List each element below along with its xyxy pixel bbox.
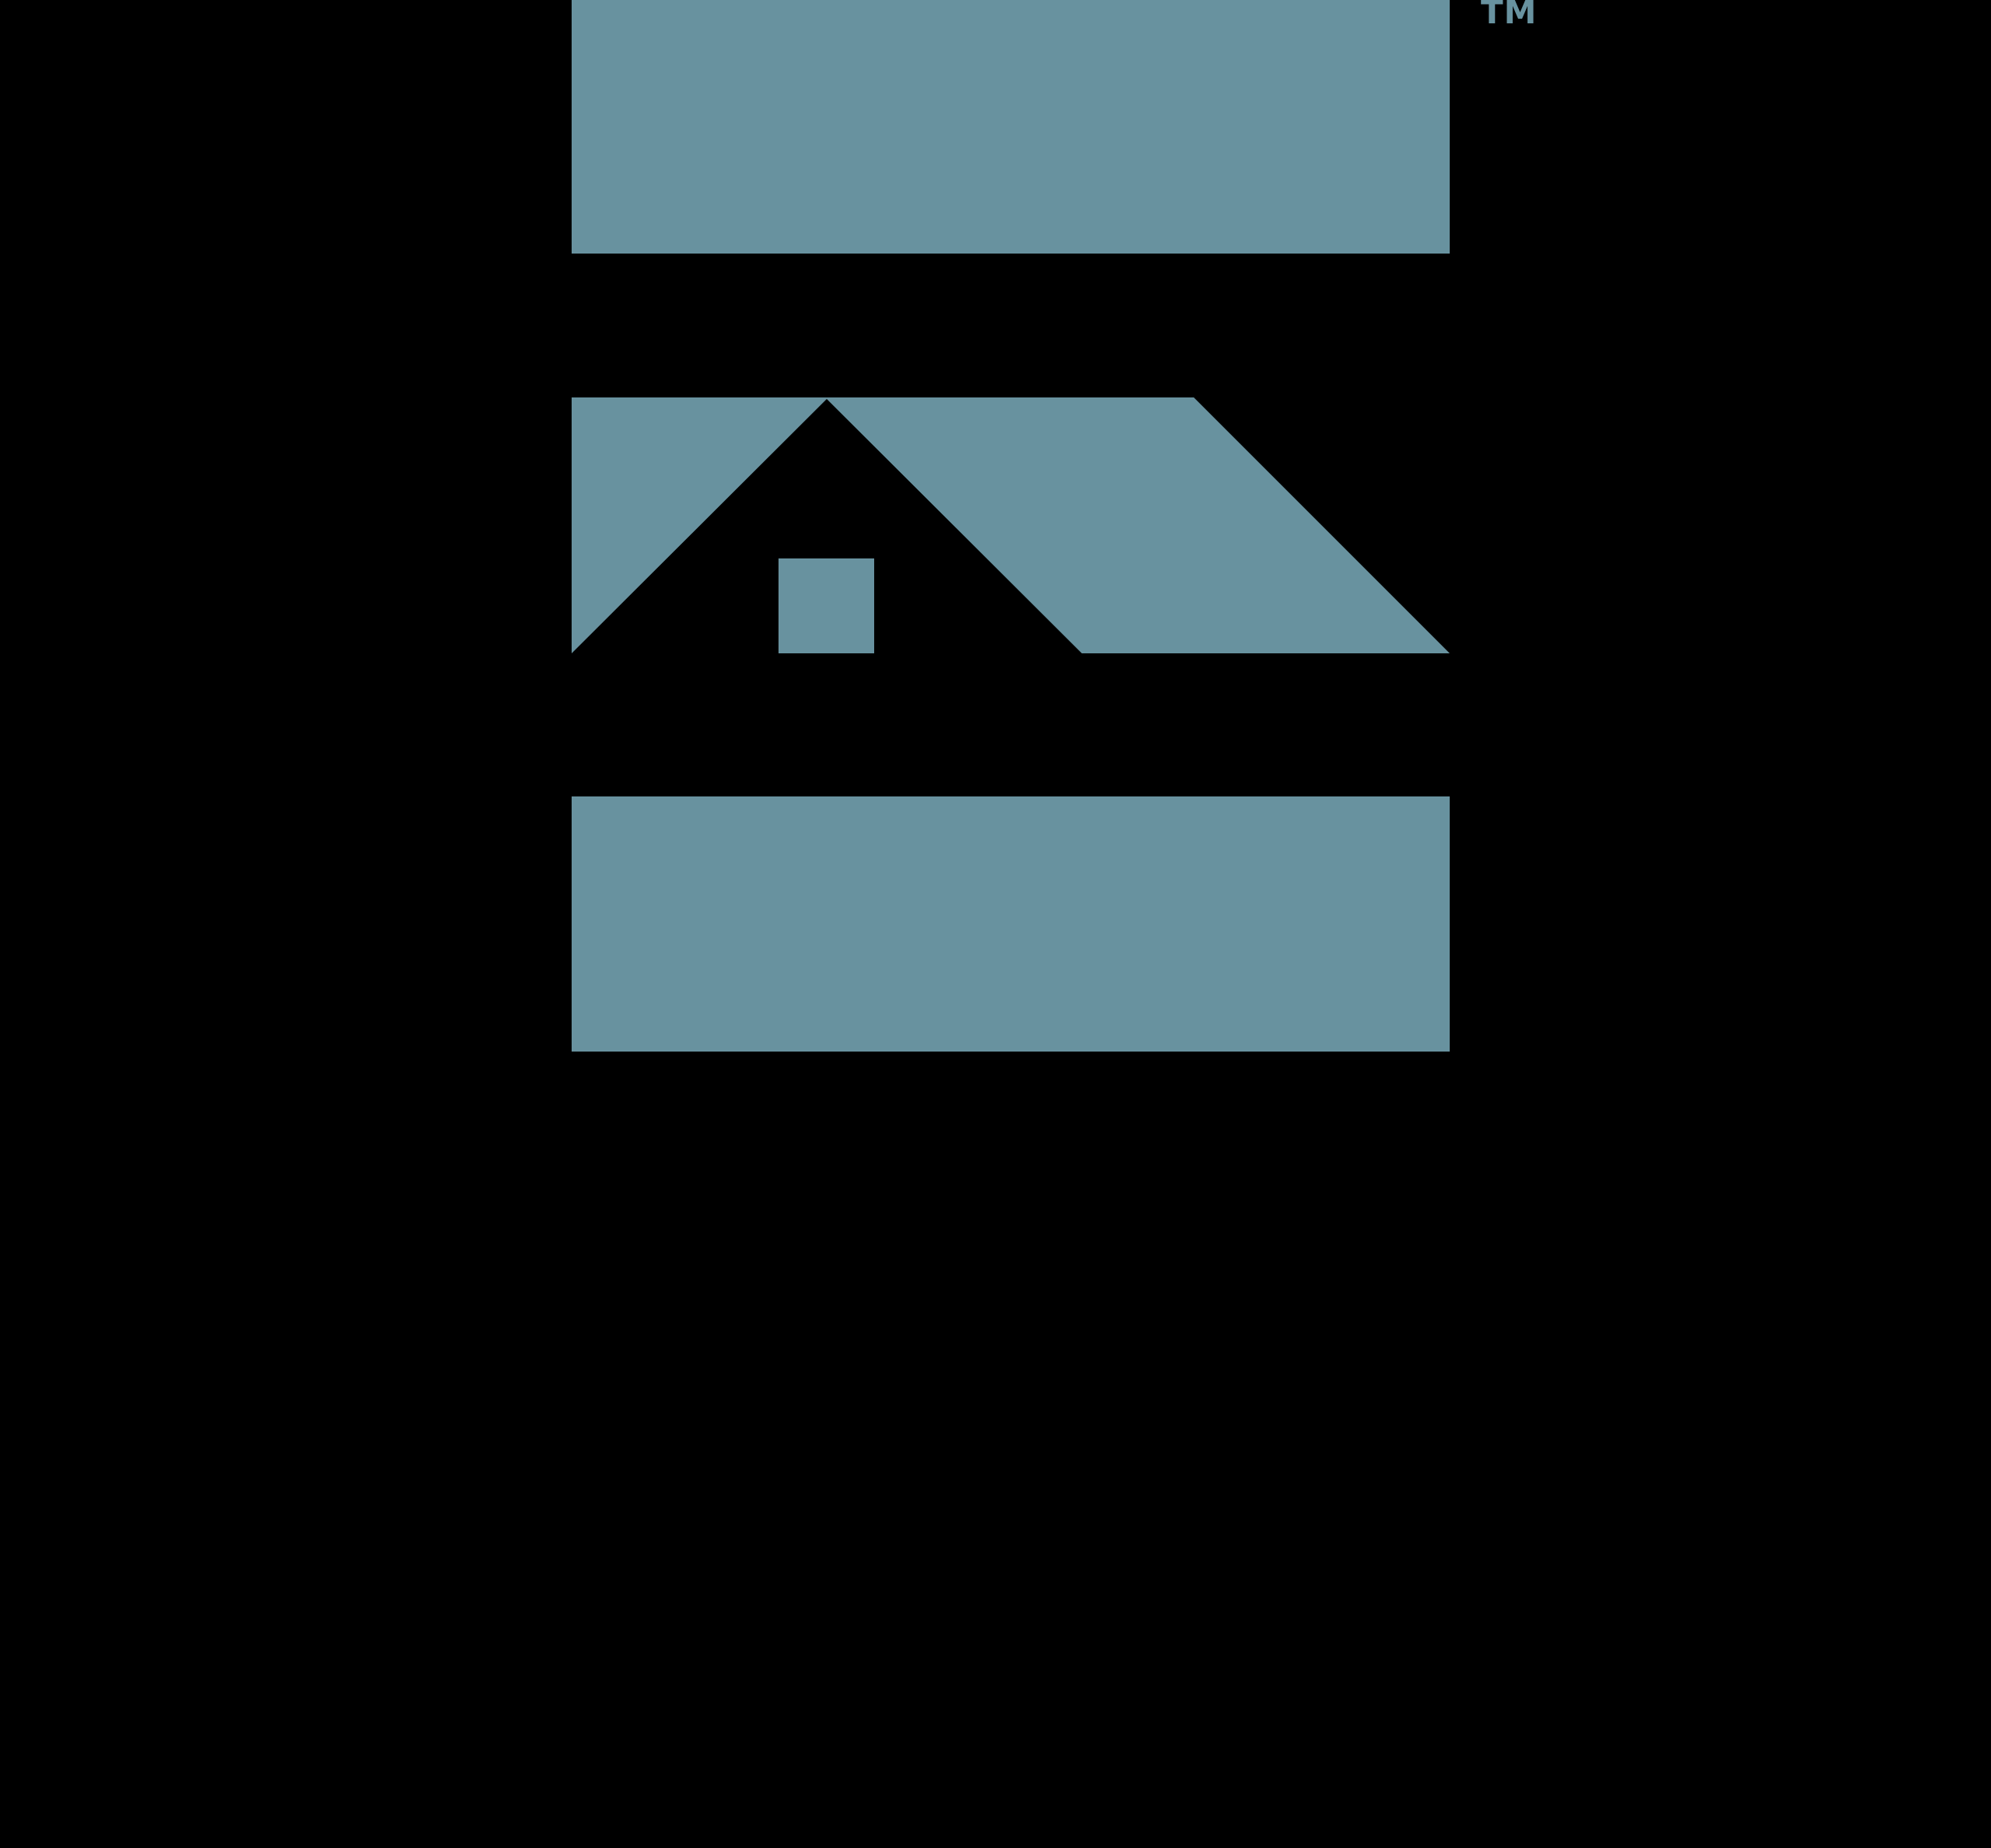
logo-top-bar bbox=[572, 0, 1450, 254]
logo-canvas: TM bbox=[0, 0, 1991, 1848]
trademark-symbol: TM bbox=[1481, 0, 1537, 29]
house-roof-window-icon bbox=[572, 397, 1450, 653]
logo-bottom-bar bbox=[572, 796, 1450, 1052]
logo-house-band bbox=[572, 397, 1450, 653]
